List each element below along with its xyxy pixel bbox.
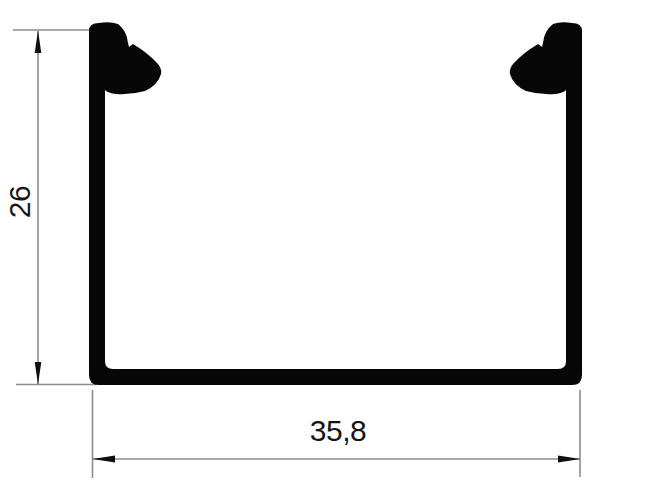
height-arrow-up-icon [35,31,42,54]
height-dimension-label: 26 [5,186,35,218]
channel-profile-shape [89,22,582,385]
technical-drawing: 26 35,8 [0,0,655,489]
width-arrow-right-icon [558,456,581,463]
width-dimension-label: 35,8 [310,416,366,446]
height-arrow-down-icon [35,362,42,385]
width-arrow-left-icon [93,456,116,463]
